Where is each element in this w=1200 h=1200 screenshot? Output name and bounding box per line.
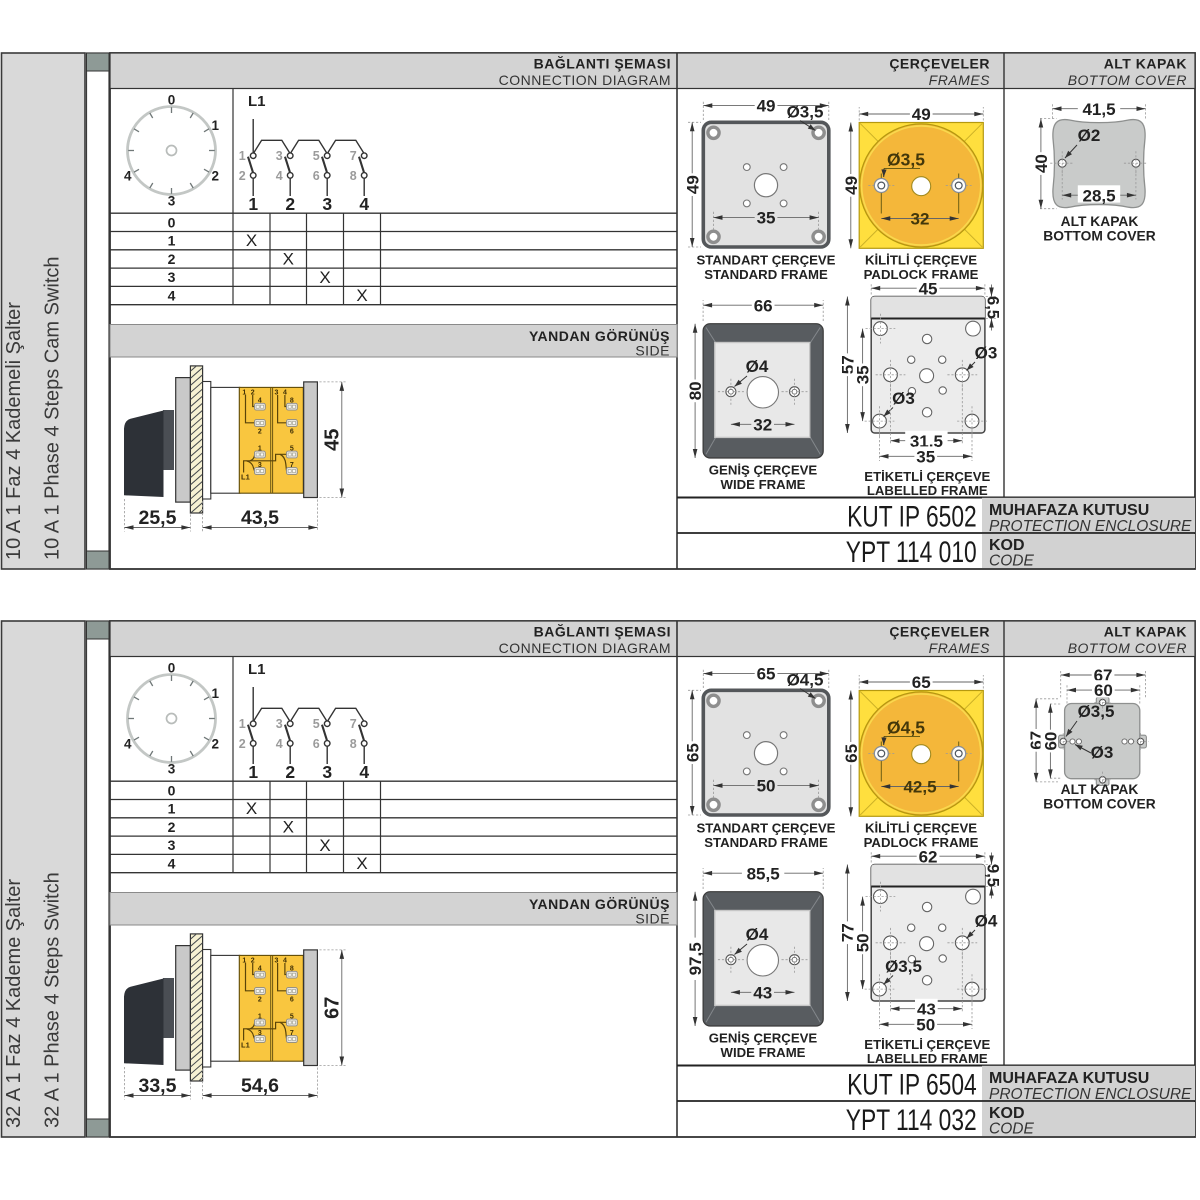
svg-text:49: 49 <box>842 176 861 195</box>
svg-text:97,5: 97,5 <box>686 942 705 975</box>
svg-text:SIDE: SIDE <box>635 343 670 359</box>
svg-text:CONNECTION DIAGRAM: CONNECTION DIAGRAM <box>499 72 671 88</box>
svg-text:ALT KAPAK: ALT KAPAK <box>1061 782 1139 797</box>
svg-text:Ø4: Ø4 <box>746 925 769 944</box>
svg-text:1: 1 <box>239 717 246 731</box>
svg-text:Ø4: Ø4 <box>975 911 998 930</box>
svg-text:Ø3,5: Ø3,5 <box>887 150 925 170</box>
svg-text:1: 1 <box>168 233 176 249</box>
svg-text:3: 3 <box>168 194 176 209</box>
svg-text:35: 35 <box>757 209 776 228</box>
svg-text:4: 4 <box>276 169 283 183</box>
svg-text:25,5: 25,5 <box>138 507 176 529</box>
svg-text:1: 1 <box>258 1014 262 1021</box>
svg-text:X: X <box>283 249 294 268</box>
svg-text:4: 4 <box>124 736 132 751</box>
svg-text:X: X <box>356 286 367 305</box>
svg-text:BOTTOM COVER: BOTTOM COVER <box>1043 797 1155 812</box>
svg-text:65: 65 <box>842 744 861 763</box>
svg-text:6: 6 <box>290 997 294 1004</box>
svg-text:STANDART ÇERÇEVE: STANDART ÇERÇEVE <box>697 820 836 835</box>
svg-text:1: 1 <box>211 686 219 701</box>
svg-text:4: 4 <box>124 168 132 183</box>
svg-text:KUT IP 6502: KUT IP 6502 <box>847 499 977 533</box>
svg-text:2: 2 <box>251 958 255 965</box>
svg-text:80: 80 <box>686 381 705 400</box>
svg-text:Ø3: Ø3 <box>975 343 998 362</box>
svg-text:1: 1 <box>242 390 246 397</box>
svg-text:1: 1 <box>258 446 262 453</box>
svg-text:FRAMES: FRAMES <box>929 640 991 656</box>
svg-text:CODE: CODE <box>989 1121 1034 1138</box>
svg-text:X: X <box>246 231 257 250</box>
svg-text:4: 4 <box>359 194 369 214</box>
svg-text:BOTTOM COVER: BOTTOM COVER <box>1068 72 1187 88</box>
svg-text:WIDE FRAME: WIDE FRAME <box>721 477 806 492</box>
svg-text:Ø4,5: Ø4,5 <box>887 718 925 738</box>
svg-text:LABELLED FRAME: LABELLED FRAME <box>867 483 988 498</box>
svg-text:2: 2 <box>251 390 255 397</box>
svg-text:7: 7 <box>350 149 357 163</box>
svg-text:6,5: 6,5 <box>984 296 1002 319</box>
svg-text:2: 2 <box>168 819 176 835</box>
svg-text:ETİKETLİ ÇERÇEVE: ETİKETLİ ÇERÇEVE <box>864 469 990 484</box>
svg-text:49: 49 <box>683 175 702 194</box>
svg-text:Ø4: Ø4 <box>746 357 769 376</box>
svg-text:LABELLED FRAME: LABELLED FRAME <box>867 1051 988 1066</box>
svg-text:3: 3 <box>322 194 332 214</box>
svg-text:Ø4,5: Ø4,5 <box>787 671 824 690</box>
svg-text:2: 2 <box>285 762 295 782</box>
svg-text:32 A 1 Phase 4 Steps Switch: 32 A 1 Phase 4 Steps Switch <box>42 872 64 1128</box>
svg-text:1: 1 <box>248 194 258 214</box>
svg-text:4: 4 <box>168 855 176 871</box>
svg-text:X: X <box>319 836 330 855</box>
svg-text:42,5: 42,5 <box>903 778 936 797</box>
svg-text:BAĞLANTI ŞEMASI: BAĞLANTI ŞEMASI <box>534 623 671 640</box>
svg-text:8: 8 <box>290 966 294 973</box>
svg-text:6: 6 <box>290 429 294 436</box>
svg-text:4: 4 <box>258 966 262 973</box>
svg-text:KİLİTLİ ÇERÇEVE: KİLİTLİ ÇERÇEVE <box>865 252 977 267</box>
svg-text:2: 2 <box>258 429 262 436</box>
svg-text:7: 7 <box>350 717 357 731</box>
svg-text:1: 1 <box>248 762 258 782</box>
svg-text:33,5: 33,5 <box>138 1075 176 1097</box>
svg-text:ALT KAPAK: ALT KAPAK <box>1104 624 1187 640</box>
svg-text:3: 3 <box>274 390 278 397</box>
svg-text:STANDART ÇERÇEVE: STANDART ÇERÇEVE <box>697 252 836 267</box>
svg-text:L1: L1 <box>248 93 266 110</box>
svg-text:6: 6 <box>313 169 320 183</box>
svg-text:5: 5 <box>313 149 320 163</box>
svg-text:X: X <box>319 268 330 287</box>
svg-text:Ø2: Ø2 <box>1078 126 1101 145</box>
svg-text:FRAMES: FRAMES <box>929 72 991 88</box>
svg-text:4: 4 <box>168 287 176 303</box>
svg-text:YPT 114 032: YPT 114 032 <box>846 1103 977 1137</box>
svg-text:60: 60 <box>1094 681 1113 700</box>
svg-text:54,6: 54,6 <box>241 1075 279 1097</box>
svg-text:3: 3 <box>276 149 283 163</box>
svg-text:40: 40 <box>1032 154 1051 173</box>
svg-text:GENİŞ ÇERÇEVE: GENİŞ ÇERÇEVE <box>709 1030 818 1045</box>
svg-text:3: 3 <box>258 462 262 469</box>
svg-text:1: 1 <box>239 149 246 163</box>
svg-text:45: 45 <box>919 279 938 298</box>
svg-text:3: 3 <box>168 837 176 853</box>
svg-text:2: 2 <box>211 168 219 183</box>
svg-text:ETİKETLİ ÇERÇEVE: ETİKETLİ ÇERÇEVE <box>864 1037 990 1052</box>
svg-text:0: 0 <box>168 782 176 798</box>
svg-text:ÇERÇEVELER: ÇERÇEVELER <box>889 56 990 72</box>
svg-text:5: 5 <box>313 717 320 731</box>
svg-text:3: 3 <box>168 269 176 285</box>
svg-text:X: X <box>356 854 367 873</box>
svg-text:1: 1 <box>168 801 176 817</box>
svg-text:6: 6 <box>313 737 320 751</box>
svg-text:62: 62 <box>919 847 938 866</box>
svg-text:50: 50 <box>916 1015 935 1034</box>
svg-text:2: 2 <box>239 737 246 751</box>
svg-text:0: 0 <box>168 214 176 230</box>
svg-text:Ø3: Ø3 <box>1091 743 1114 762</box>
svg-text:32: 32 <box>911 210 930 229</box>
svg-text:4: 4 <box>276 737 283 751</box>
svg-text:KOD: KOD <box>989 537 1025 554</box>
svg-text:STANDARD FRAME: STANDARD FRAME <box>704 835 828 850</box>
svg-text:Ø3,5: Ø3,5 <box>1078 702 1115 721</box>
svg-text:MUHAFAZA KUTUSU: MUHAFAZA KUTUSU <box>989 1070 1149 1087</box>
svg-text:Ø3,5: Ø3,5 <box>787 103 824 122</box>
svg-text:7: 7 <box>290 462 294 469</box>
svg-text:4: 4 <box>283 958 287 965</box>
svg-text:7: 7 <box>290 1030 294 1037</box>
svg-text:41,5: 41,5 <box>1082 100 1115 119</box>
svg-text:BOTTOM COVER: BOTTOM COVER <box>1043 229 1155 244</box>
svg-text:1: 1 <box>242 958 246 965</box>
svg-text:35: 35 <box>916 447 935 466</box>
svg-text:0: 0 <box>168 661 176 676</box>
svg-text:3: 3 <box>258 1030 262 1037</box>
svg-text:49: 49 <box>757 97 776 116</box>
svg-text:2: 2 <box>168 251 176 267</box>
svg-text:8: 8 <box>350 169 357 183</box>
svg-text:4: 4 <box>283 390 287 397</box>
svg-text:5: 5 <box>290 446 294 453</box>
svg-text:35: 35 <box>854 365 873 384</box>
svg-text:0: 0 <box>168 93 176 108</box>
svg-text:85,5: 85,5 <box>747 864 780 883</box>
svg-text:10 A 1 Faz 4 Kademeli Şalter: 10 A 1 Faz 4 Kademeli Şalter <box>3 302 25 560</box>
svg-text:2: 2 <box>211 736 219 751</box>
svg-text:32 A 1 Faz 4 Kademe Şalter: 32 A 1 Faz 4 Kademe Şalter <box>3 879 25 1128</box>
svg-text:60: 60 <box>1042 732 1061 751</box>
svg-text:3: 3 <box>168 762 176 777</box>
svg-text:2: 2 <box>239 169 246 183</box>
svg-text:SIDE: SIDE <box>635 911 670 927</box>
svg-text:4: 4 <box>258 398 262 405</box>
svg-text:MUHAFAZA KUTUSU: MUHAFAZA KUTUSU <box>989 502 1149 519</box>
svg-text:9,5: 9,5 <box>984 864 1002 887</box>
svg-text:8: 8 <box>350 737 357 751</box>
svg-text:3: 3 <box>274 958 278 965</box>
svg-text:2: 2 <box>258 997 262 1004</box>
svg-text:GENİŞ ÇERÇEVE: GENİŞ ÇERÇEVE <box>709 462 818 477</box>
svg-text:65: 65 <box>757 665 776 684</box>
svg-text:43: 43 <box>753 983 772 1002</box>
svg-text:CONNECTION DIAGRAM: CONNECTION DIAGRAM <box>499 640 671 656</box>
svg-text:X: X <box>283 817 294 836</box>
svg-text:65: 65 <box>912 673 931 692</box>
svg-text:KİLİTLİ ÇERÇEVE: KİLİTLİ ÇERÇEVE <box>865 820 977 835</box>
svg-text:BOTTOM COVER: BOTTOM COVER <box>1068 640 1187 656</box>
svg-text:ALT KAPAK: ALT KAPAK <box>1061 214 1139 229</box>
svg-text:1: 1 <box>211 118 219 133</box>
svg-text:8: 8 <box>290 398 294 405</box>
svg-text:KUT IP 6504: KUT IP 6504 <box>847 1067 977 1101</box>
svg-text:45: 45 <box>322 429 344 451</box>
svg-text:3: 3 <box>276 717 283 731</box>
svg-text:2: 2 <box>285 194 295 214</box>
svg-text:WIDE FRAME: WIDE FRAME <box>721 1045 806 1060</box>
svg-text:65: 65 <box>683 743 702 762</box>
svg-text:BAĞLANTI ŞEMASI: BAĞLANTI ŞEMASI <box>534 55 671 72</box>
svg-text:STANDARD FRAME: STANDARD FRAME <box>704 267 828 282</box>
svg-text:4: 4 <box>359 762 369 782</box>
svg-text:L1: L1 <box>248 661 266 678</box>
svg-text:Ø3: Ø3 <box>892 389 915 408</box>
svg-text:10 A 1 Phase 4 Steps Cam Switc: 10 A 1 Phase 4 Steps Cam Switch <box>42 256 64 560</box>
svg-text:YPT 114 010: YPT 114 010 <box>846 535 977 569</box>
svg-text:50: 50 <box>757 777 776 796</box>
svg-text:L1: L1 <box>241 1041 250 1050</box>
svg-text:KOD: KOD <box>989 1105 1025 1122</box>
svg-text:50: 50 <box>854 933 873 952</box>
svg-text:X: X <box>246 799 257 818</box>
svg-text:5: 5 <box>290 1014 294 1021</box>
svg-text:L1: L1 <box>241 473 250 482</box>
svg-text:ÇERÇEVELER: ÇERÇEVELER <box>889 624 990 640</box>
svg-text:CODE: CODE <box>989 553 1034 570</box>
svg-text:43,5: 43,5 <box>241 507 279 529</box>
svg-text:3: 3 <box>322 762 332 782</box>
svg-text:ALT KAPAK: ALT KAPAK <box>1104 56 1187 72</box>
svg-text:67: 67 <box>322 997 344 1019</box>
svg-text:49: 49 <box>912 105 931 124</box>
svg-text:66: 66 <box>754 296 773 315</box>
svg-text:28,5: 28,5 <box>1083 186 1116 205</box>
svg-text:32: 32 <box>753 415 772 434</box>
